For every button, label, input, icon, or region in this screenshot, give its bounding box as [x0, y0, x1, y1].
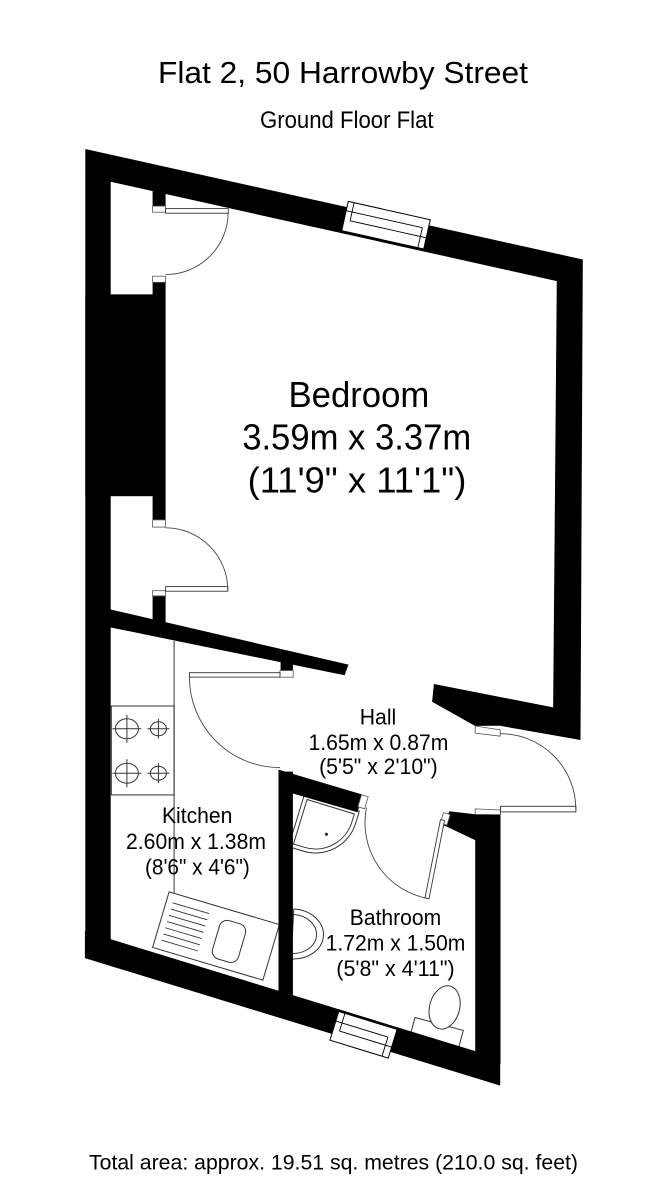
svg-text:(5'8" x 4'11"): (5'8" x 4'11")	[336, 956, 454, 981]
svg-text:Hall: Hall	[360, 705, 397, 730]
svg-text:Ground Floor Flat: Ground Floor Flat	[260, 107, 434, 134]
svg-text:(11'9" x 11'1"): (11'9" x 11'1")	[248, 460, 467, 500]
svg-text:3.59m x 3.37m: 3.59m x 3.37m	[242, 418, 471, 458]
svg-text:(8'6" x 4'6"): (8'6" x 4'6")	[145, 854, 250, 879]
svg-text:Kitchen: Kitchen	[162, 803, 233, 828]
svg-text:Bathroom: Bathroom	[350, 905, 441, 930]
svg-text:Bedroom: Bedroom	[289, 374, 430, 415]
svg-text:2.60m x 1.38m: 2.60m x 1.38m	[126, 829, 266, 854]
svg-text:Flat 2, 50 Harrowby Street: Flat 2, 50 Harrowby Street	[158, 55, 528, 90]
svg-text:1.72m x 1.50m: 1.72m x 1.50m	[326, 931, 466, 956]
svg-text:Total area: approx. 19.51 sq.: Total area: approx. 19.51 sq. metres (21…	[89, 1150, 578, 1175]
svg-text:(5'5" x 2'10"): (5'5" x 2'10")	[319, 754, 438, 779]
svg-text:1.65m x 0.87m: 1.65m x 0.87m	[308, 730, 448, 755]
